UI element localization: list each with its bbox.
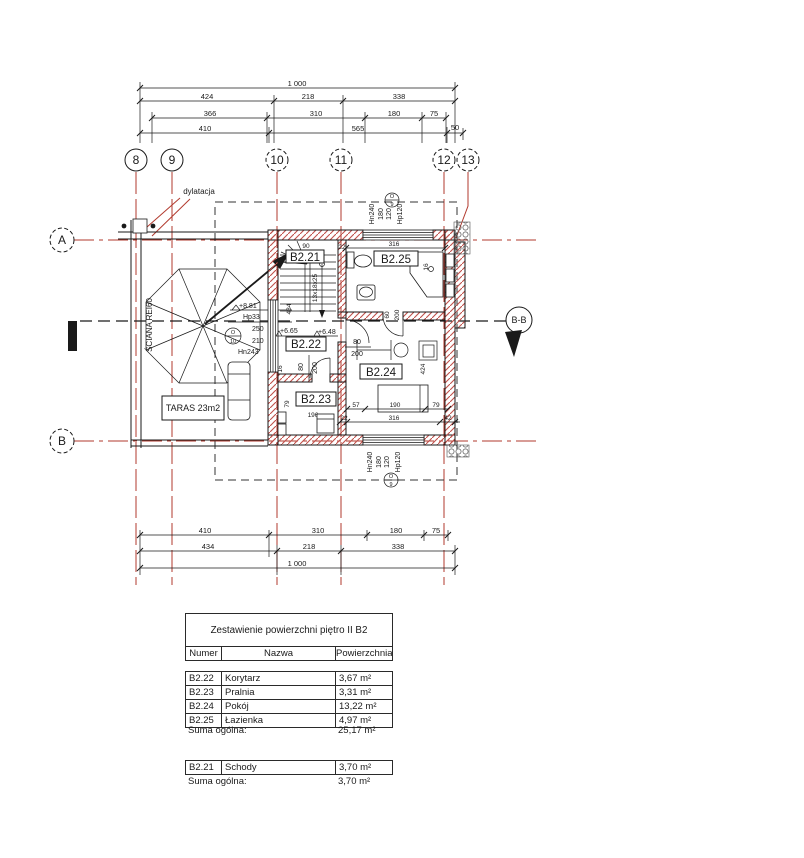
- grid-row-A: A: [58, 233, 66, 247]
- total-value: 25,17 m²: [338, 725, 376, 736]
- laundry-b223: B2.23 79 196: [278, 392, 336, 435]
- area-table-header: Numer Nazwa Powierzchnia: [185, 646, 393, 661]
- dim: 180: [388, 109, 401, 118]
- cabinet: [278, 412, 286, 423]
- shelf: [446, 269, 454, 282]
- dim: 16: [423, 263, 430, 271]
- level-mark: +6.65: [280, 328, 298, 335]
- dim-total-bottom: 1 000: [288, 559, 307, 568]
- table-row: B2.23 Pralnia 3,31 m²: [186, 686, 392, 700]
- bed: [378, 385, 428, 412]
- table-row: B2.22 Korytarz 3,67 m²: [186, 672, 392, 686]
- taras-label: TARAS 23m2: [166, 403, 220, 413]
- window-symbol: O: [390, 194, 395, 200]
- grid-col-10: 10: [270, 153, 284, 167]
- window-w: 180: [378, 208, 385, 220]
- section-arrow: [505, 330, 522, 357]
- table-row: B2.21 Schody 3,70 m²: [186, 761, 392, 774]
- shelf: [446, 284, 454, 297]
- stairs-table: B2.21 Schody 3,70 m²: [185, 760, 393, 775]
- area-table-title-box: Zestawienie powierzchni piętro II B2: [185, 613, 393, 647]
- room-label-b222: B2.22: [291, 339, 321, 351]
- top-dimensions: 1 000 424 218 338 366 310 180 75 410 565…: [137, 79, 466, 143]
- window-annotation-bottom: O 9 Hn240 180 120 Hp120: [367, 452, 402, 488]
- expansion-joint: [133, 219, 147, 233]
- dim: 310: [310, 109, 323, 118]
- dim: 60: [384, 311, 391, 319]
- dim: 42: [444, 415, 452, 422]
- grid-col-11: 11: [335, 153, 348, 167]
- dim: 200: [394, 309, 401, 320]
- stair-steps-note: 13x18x25: [312, 274, 319, 303]
- col-header-nazwa: Nazwa: [222, 647, 336, 660]
- dim: 565: [352, 124, 365, 133]
- room-label-b225: B2.25: [381, 254, 411, 266]
- dim: 316: [389, 241, 400, 248]
- window-hp: Hp120: [395, 452, 402, 473]
- dim: 75: [432, 526, 440, 535]
- dim: 218: [302, 92, 315, 101]
- dim: 338: [393, 92, 406, 101]
- stairs-table-total: Suma ogólna: 3,70 m²: [185, 776, 393, 787]
- stair-direction-arrow: [319, 310, 325, 318]
- dim: 180: [390, 526, 403, 535]
- dim: 22: [340, 415, 348, 422]
- hn-mark: Hn243: [238, 349, 259, 356]
- window-annotation-top: O 9 Hn240 180 120 Hp120: [369, 193, 404, 224]
- dylatacja-label: dylatacja: [183, 187, 215, 196]
- cell-name: Pralnia: [222, 686, 336, 699]
- grid-col-12: 12: [437, 153, 451, 167]
- col-header-powierzchnia: Powierzchnia: [336, 647, 392, 660]
- level-mark: +6.48: [318, 329, 336, 336]
- dim: 218: [303, 542, 316, 551]
- door-symbol: O: [231, 330, 236, 336]
- room-label-b221: B2.21: [290, 252, 320, 264]
- table-row: B2.24 Pokój 13,22 m²: [186, 700, 392, 714]
- sun-lounger: [228, 362, 250, 420]
- dim: 22: [338, 244, 346, 251]
- window-symbol: O: [389, 474, 394, 480]
- window-h: 120: [386, 208, 393, 220]
- door-size-h: 200: [312, 362, 319, 374]
- washing-machine: [317, 414, 334, 433]
- cabinet: [278, 424, 286, 435]
- dim: 410: [199, 124, 212, 133]
- dim: 16: [277, 365, 284, 373]
- cell-number: B2.23: [186, 686, 222, 699]
- window-h: 120: [384, 456, 391, 468]
- dim: 50: [451, 123, 459, 132]
- bathroom-b225: B2.25 316 16 60 200: [346, 241, 454, 336]
- shelf: [446, 254, 454, 267]
- window-symbol-no: 9: [389, 482, 392, 488]
- door-symbol-no: 10: [230, 339, 236, 345]
- grid-col-9: 9: [169, 153, 176, 167]
- window-top: [363, 230, 433, 240]
- room-label-b223: B2.23: [301, 394, 331, 406]
- dim: 79: [432, 402, 440, 409]
- dim: 310: [312, 526, 325, 535]
- cell-number: B2.21: [186, 761, 222, 774]
- window-hn: Hn240: [369, 204, 376, 225]
- stair-run-dim: 434: [286, 303, 293, 314]
- dim: 57: [352, 402, 360, 409]
- window-symbol-no: 9: [390, 202, 393, 208]
- total-value: 3,70 m²: [338, 776, 370, 787]
- dim: 316: [389, 415, 400, 422]
- section-label: B-B: [511, 315, 526, 325]
- window-w: 180: [376, 456, 383, 468]
- dim-total-top: 1 000: [288, 79, 307, 88]
- dim: 424: [201, 92, 214, 101]
- dim: 410: [199, 526, 212, 535]
- cell-name: Schody: [222, 761, 336, 774]
- cell-name: Pokój: [222, 700, 336, 713]
- dim: 434: [202, 542, 215, 551]
- cell-number: B2.24: [186, 700, 222, 713]
- grid-row-B: B: [58, 434, 66, 448]
- insulation: [454, 222, 470, 254]
- terrace: ŚCIANA REI60 TARAS 23m2 +8.81 Hp33 250 2…: [118, 219, 292, 448]
- plan-canvas: 1 000 424 218 338 366 310 180 75 410 565…: [0, 0, 804, 858]
- area-table-title: Zestawienie powierzchni piętro II B2: [211, 625, 368, 636]
- toilet-tank: [347, 252, 354, 268]
- door-height: 210: [252, 338, 264, 345]
- section-cut-mark: [68, 321, 77, 351]
- window-hn: Hn240: [367, 452, 374, 473]
- total-label: Suma ogólna:: [188, 725, 247, 736]
- toilet: [355, 255, 372, 267]
- window-bottom: [363, 435, 424, 445]
- door-size-w: 80: [298, 363, 305, 371]
- dim: 79: [284, 400, 291, 408]
- table-header-row: Numer Nazwa Powierzchnia: [186, 647, 392, 660]
- door-width: 250: [252, 326, 264, 333]
- room-label-b224: B2.24: [366, 367, 397, 379]
- grid-col-13: 13: [461, 153, 475, 167]
- cell-name: Korytarz: [222, 672, 336, 685]
- window-hp: Hp120: [397, 204, 404, 225]
- cell-area: 13,22 m²: [336, 700, 392, 713]
- dim: 424: [420, 363, 427, 374]
- hp-mark: Hp33: [243, 314, 260, 321]
- dim: 75: [430, 109, 438, 118]
- dim: 190: [390, 402, 401, 409]
- col-header-numer: Numer: [186, 647, 222, 660]
- insulation: [447, 445, 469, 457]
- floor-plan-drawing: 1 000 424 218 338 366 310 180 75 410 565…: [0, 0, 804, 858]
- dim: 338: [392, 542, 405, 551]
- dim: 90: [302, 243, 310, 250]
- bottom-dimensions: 410 310 180 75 434 218 338 1 000: [137, 526, 458, 575]
- dim: 366: [204, 109, 217, 118]
- total-label: Suma ogólna:: [188, 776, 247, 787]
- cell-area: 3,70 m²: [336, 761, 392, 774]
- cell-area: 3,67 m²: [336, 672, 392, 685]
- area-table-body: B2.22 Korytarz 3,67 m² B2.23 Pralnia 3,3…: [185, 671, 393, 728]
- grid-col-8: 8: [133, 153, 140, 167]
- area-table-total: Suma ogólna: 25,17 m²: [185, 725, 393, 736]
- cell-number: B2.22: [186, 672, 222, 685]
- cell-area: 3,31 m²: [336, 686, 392, 699]
- level-mark: +8.81: [239, 303, 257, 310]
